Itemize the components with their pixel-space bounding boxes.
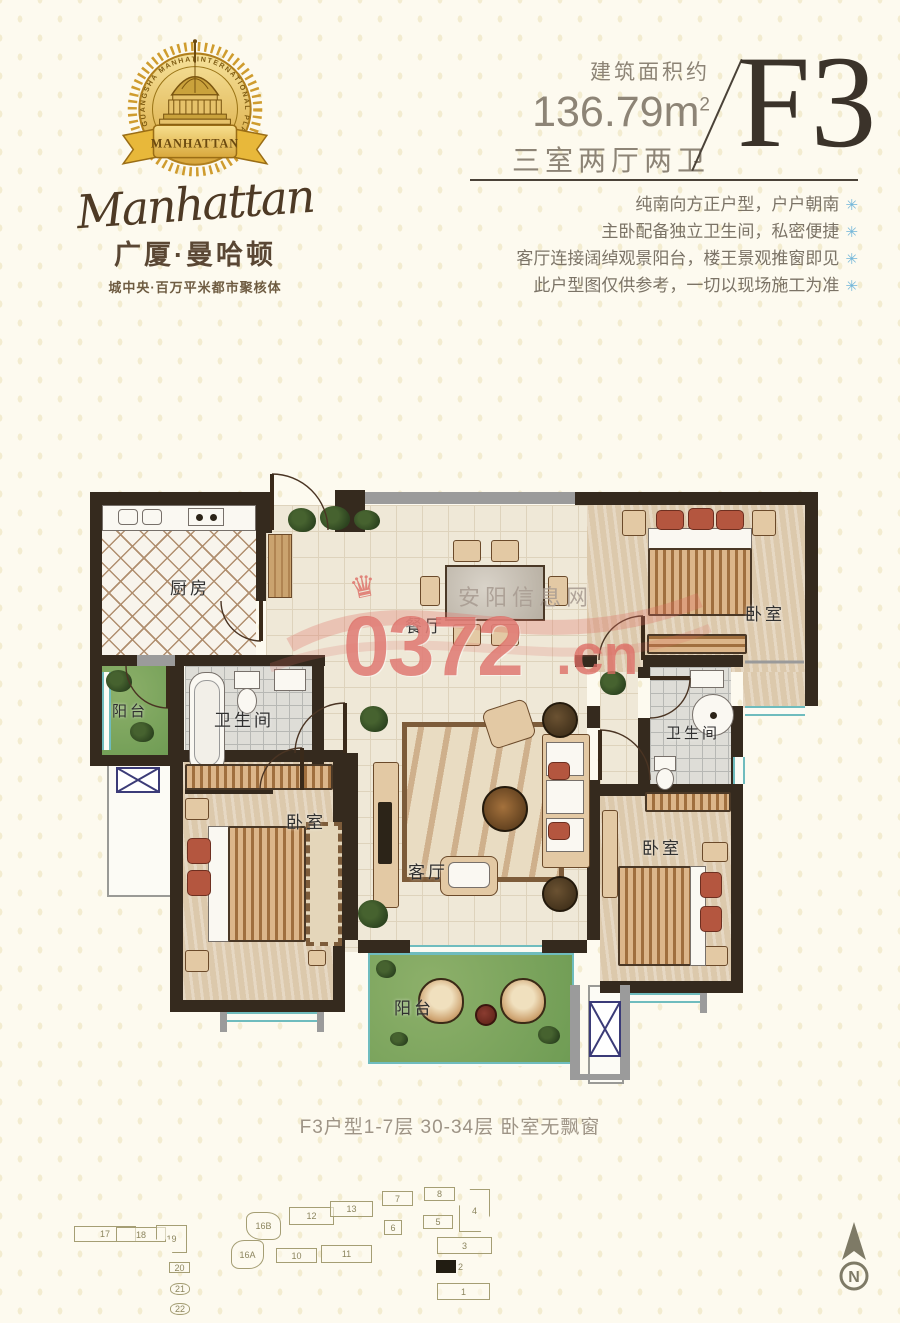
site-building-16A: 16A bbox=[231, 1240, 264, 1269]
wall-segment bbox=[345, 753, 358, 940]
site-building-19: 19 bbox=[156, 1225, 187, 1253]
plant-icon bbox=[600, 671, 626, 695]
room-label: 阳台 bbox=[112, 700, 148, 721]
star-icon: ✳ bbox=[845, 224, 858, 241]
wall-segment bbox=[90, 505, 102, 758]
area-value: 136.79m2 bbox=[430, 88, 710, 137]
wall-segment bbox=[731, 706, 743, 993]
site-building-21: 21 bbox=[170, 1283, 190, 1295]
unit-info-block: 建筑面积约 136.79m2 三室两厅两卫 bbox=[430, 56, 710, 179]
furniture-shower-drain bbox=[710, 712, 717, 719]
site-building-4: 4 bbox=[459, 1189, 490, 1232]
window-band bbox=[317, 1012, 324, 1032]
plant-icon bbox=[354, 510, 380, 530]
compass-letter: N bbox=[848, 1269, 860, 1286]
wall-segment bbox=[575, 492, 818, 505]
furniture-coffee-table bbox=[482, 786, 528, 832]
wall-segment bbox=[587, 706, 600, 728]
furniture-dresser bbox=[647, 634, 747, 654]
wall-segment bbox=[170, 1000, 333, 1012]
furniture-armchair-seat bbox=[448, 862, 490, 888]
plant-icon bbox=[538, 1026, 560, 1044]
site-building-2: 2 bbox=[436, 1260, 456, 1273]
furniture-toilet-bowl bbox=[656, 768, 674, 790]
floorplan-caption: F3户型1-7层 30-34层 卧室无飘窗 bbox=[0, 1112, 900, 1139]
ribbon-text: MANHATTAN bbox=[151, 137, 239, 151]
furniture-pillow bbox=[688, 508, 714, 530]
wall-segment bbox=[542, 940, 587, 953]
furniture-pillow bbox=[187, 870, 211, 896]
furniture-toilet-tank bbox=[234, 671, 260, 689]
brand-tagline: 城中央·百万平米都市聚核体 bbox=[55, 277, 335, 296]
window-band bbox=[365, 492, 575, 504]
layout-desc: 三室两厅两卫 bbox=[430, 139, 710, 179]
wall-segment bbox=[175, 655, 325, 666]
flyer-page: GUANGSHA MANHATTAN INTERNATIONAL PLAZA bbox=[0, 0, 900, 1323]
wall-segment bbox=[90, 655, 137, 666]
site-building-11: 11 bbox=[321, 1245, 372, 1263]
furniture-bed-sheet bbox=[648, 528, 752, 550]
plant-icon bbox=[360, 706, 388, 732]
room-label: 卧室 bbox=[286, 808, 326, 833]
furniture-pillow bbox=[716, 510, 744, 530]
room-label: 阳台 bbox=[394, 994, 434, 1019]
furniture-dresser bbox=[602, 810, 618, 898]
wall-segment bbox=[90, 755, 170, 766]
furniture-patio-table bbox=[475, 1004, 497, 1026]
brand-name-cn: 广厦·曼哈顿 bbox=[55, 233, 335, 272]
selling-point: 客厅连接阔绰观景阳台，楼王景观推窗即见✳ bbox=[516, 246, 858, 273]
furniture-chair bbox=[453, 624, 481, 646]
site-building-12: 12 bbox=[289, 1207, 334, 1225]
site-building-3: 3 bbox=[437, 1237, 492, 1254]
room-label: 卫生间 bbox=[214, 706, 274, 731]
window-bathroom-2 bbox=[733, 757, 745, 784]
furniture-bed-blanket bbox=[648, 548, 752, 616]
star-icon: ✳ bbox=[845, 251, 858, 268]
plant-icon bbox=[130, 722, 154, 742]
selling-point: 主卧配备独立卫生间，私密便捷✳ bbox=[516, 219, 858, 246]
floor-elevator bbox=[588, 985, 624, 1084]
plant-icon bbox=[106, 670, 132, 692]
wall-segment bbox=[90, 492, 260, 505]
star-icon: ✳ bbox=[845, 197, 858, 214]
furniture-chair bbox=[420, 576, 440, 606]
floor-bay-topright bbox=[743, 672, 805, 708]
site-building-10: 10 bbox=[276, 1248, 317, 1263]
furniture-pillow bbox=[548, 822, 570, 840]
room-label: 卧室 bbox=[745, 600, 785, 625]
furniture-nightstand bbox=[622, 510, 646, 536]
header-divider-line bbox=[470, 179, 858, 181]
wall-segment bbox=[805, 505, 818, 706]
site-building-5: 5 bbox=[423, 1215, 453, 1229]
plant-icon bbox=[320, 506, 350, 530]
wall-segment bbox=[358, 940, 410, 953]
window-band bbox=[570, 985, 580, 1080]
furniture-wardrobe bbox=[185, 764, 333, 790]
furniture-chair bbox=[491, 540, 519, 562]
plant-icon bbox=[390, 1032, 408, 1046]
brand-badge-icon: GUANGSHA MANHATTAN INTERNATIONAL PLAZA bbox=[109, 22, 281, 182]
furniture-stove bbox=[188, 508, 224, 526]
wall-segment bbox=[168, 660, 184, 762]
furniture-wash-basin bbox=[274, 669, 306, 691]
window-band bbox=[700, 993, 707, 1013]
site-building-13: 13 bbox=[330, 1201, 373, 1217]
furniture-wardrobe bbox=[645, 792, 731, 812]
window-band bbox=[623, 993, 630, 1013]
floorplan: 厨房餐厅卧室阳台卫生间卫生间客厅卧室卧室阳台 bbox=[90, 466, 830, 1100]
plant-icon bbox=[358, 900, 388, 928]
wall-segment bbox=[170, 762, 183, 1012]
site-building-7: 7 bbox=[382, 1191, 413, 1206]
area-label: 建筑面积约 bbox=[430, 56, 710, 86]
furniture-side-table bbox=[542, 876, 578, 912]
furniture-sink bbox=[142, 509, 162, 525]
furniture-bedroom-rug bbox=[306, 822, 342, 946]
wall-segment bbox=[638, 718, 650, 784]
window-living-balcony bbox=[410, 945, 542, 954]
room-label: 卧室 bbox=[642, 834, 682, 859]
furniture-nightstand bbox=[702, 842, 728, 862]
room-label: 卫生间 bbox=[666, 722, 720, 743]
room-label: 餐厅 bbox=[405, 612, 445, 637]
furniture-dining-table bbox=[445, 565, 545, 621]
window-bedroom-right-bay bbox=[630, 993, 700, 1003]
furniture-nightstand bbox=[185, 798, 209, 820]
selling-points-list: 纯南向方正户型，户户朝南✳主卧配备独立卫生间，私密便捷✳客厅连接阔绰观景阳台，楼… bbox=[516, 192, 858, 300]
wall-segment bbox=[256, 505, 266, 601]
selling-point: 纯南向方正户型，户户朝南✳ bbox=[516, 192, 858, 219]
site-building-22: 22 bbox=[170, 1303, 190, 1315]
wall-segment bbox=[575, 655, 597, 667]
brand-script-name: Manhattan bbox=[54, 171, 337, 236]
window-bedroom-left-bay bbox=[227, 1012, 317, 1022]
furniture-stool bbox=[308, 950, 326, 966]
furniture-wash-basin bbox=[690, 670, 724, 688]
furniture-pillow bbox=[700, 872, 722, 898]
compass-north-icon: N bbox=[832, 1220, 876, 1299]
furniture-bed-blanket bbox=[618, 866, 696, 966]
site-building-16B: 16B bbox=[246, 1212, 281, 1240]
site-building-20: 20 bbox=[169, 1262, 190, 1273]
window-band bbox=[220, 1012, 227, 1032]
brand-logo-block: GUANGSHA MANHATTAN INTERNATIONAL PLAZA bbox=[55, 22, 335, 296]
window-band bbox=[570, 1074, 630, 1080]
furniture-pillow bbox=[548, 762, 570, 780]
furniture-pillow bbox=[187, 838, 211, 864]
wall-segment bbox=[643, 655, 743, 667]
furniture-entry-mat bbox=[268, 534, 292, 598]
site-building-1: 1 bbox=[437, 1283, 490, 1300]
wall-segment bbox=[638, 667, 650, 678]
furniture-chair bbox=[548, 576, 568, 606]
star-icon: ✳ bbox=[845, 278, 858, 295]
unit-code: F3 bbox=[737, 36, 867, 168]
furniture-nightstand bbox=[185, 950, 209, 972]
ribbon-banner: MANHATTAN bbox=[123, 125, 267, 163]
furniture-pillow bbox=[656, 510, 684, 530]
room-label: 客厅 bbox=[408, 858, 448, 883]
area-sup: 2 bbox=[699, 95, 710, 116]
window-band bbox=[137, 655, 175, 666]
furniture-pillow bbox=[700, 906, 722, 932]
window-topright-bay bbox=[745, 706, 805, 716]
furniture-nightstand bbox=[752, 510, 776, 536]
furniture-chair bbox=[491, 624, 519, 646]
furniture-side-table bbox=[542, 702, 578, 738]
room-label: 厨房 bbox=[170, 574, 210, 599]
floor-utility-panel bbox=[107, 760, 174, 897]
plant-icon bbox=[376, 960, 396, 978]
furniture-tv bbox=[378, 802, 392, 864]
furniture-bed-sheet bbox=[208, 826, 230, 942]
plant-icon bbox=[288, 508, 316, 532]
site-building-8: 8 bbox=[424, 1187, 455, 1201]
furniture-wicker-chair bbox=[500, 978, 546, 1024]
furniture-bed-blanket bbox=[228, 826, 306, 942]
site-building-label: 2 bbox=[458, 1262, 463, 1272]
furniture-chair bbox=[453, 540, 481, 562]
furniture-sink bbox=[118, 509, 138, 525]
furniture-sofa-cushion bbox=[546, 780, 584, 814]
furniture-burner bbox=[196, 514, 203, 521]
selling-point: 此户型图仅供参考，一切以现场施工为准✳ bbox=[516, 273, 858, 300]
furniture-burner bbox=[210, 514, 217, 521]
site-building-6: 6 bbox=[384, 1220, 402, 1235]
